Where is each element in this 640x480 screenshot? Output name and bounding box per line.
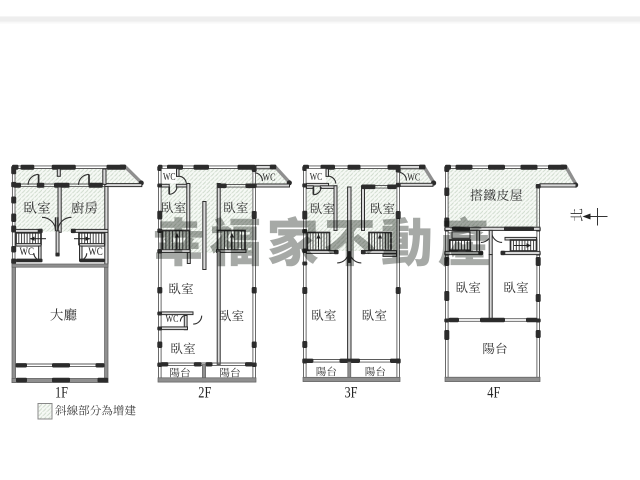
svg-text:1F: 1F <box>55 385 68 402</box>
svg-text:WC: WC <box>20 246 35 258</box>
svg-text:WC: WC <box>166 314 179 325</box>
svg-text:WC: WC <box>263 173 276 184</box>
svg-text:3F: 3F <box>345 385 358 402</box>
svg-text:WC: WC <box>163 172 176 183</box>
svg-text:WC: WC <box>407 173 420 184</box>
svg-text:WC: WC <box>88 246 103 258</box>
svg-text:4F: 4F <box>487 385 500 402</box>
svg-text:WC: WC <box>310 172 323 183</box>
svg-text:2F: 2F <box>198 385 211 402</box>
